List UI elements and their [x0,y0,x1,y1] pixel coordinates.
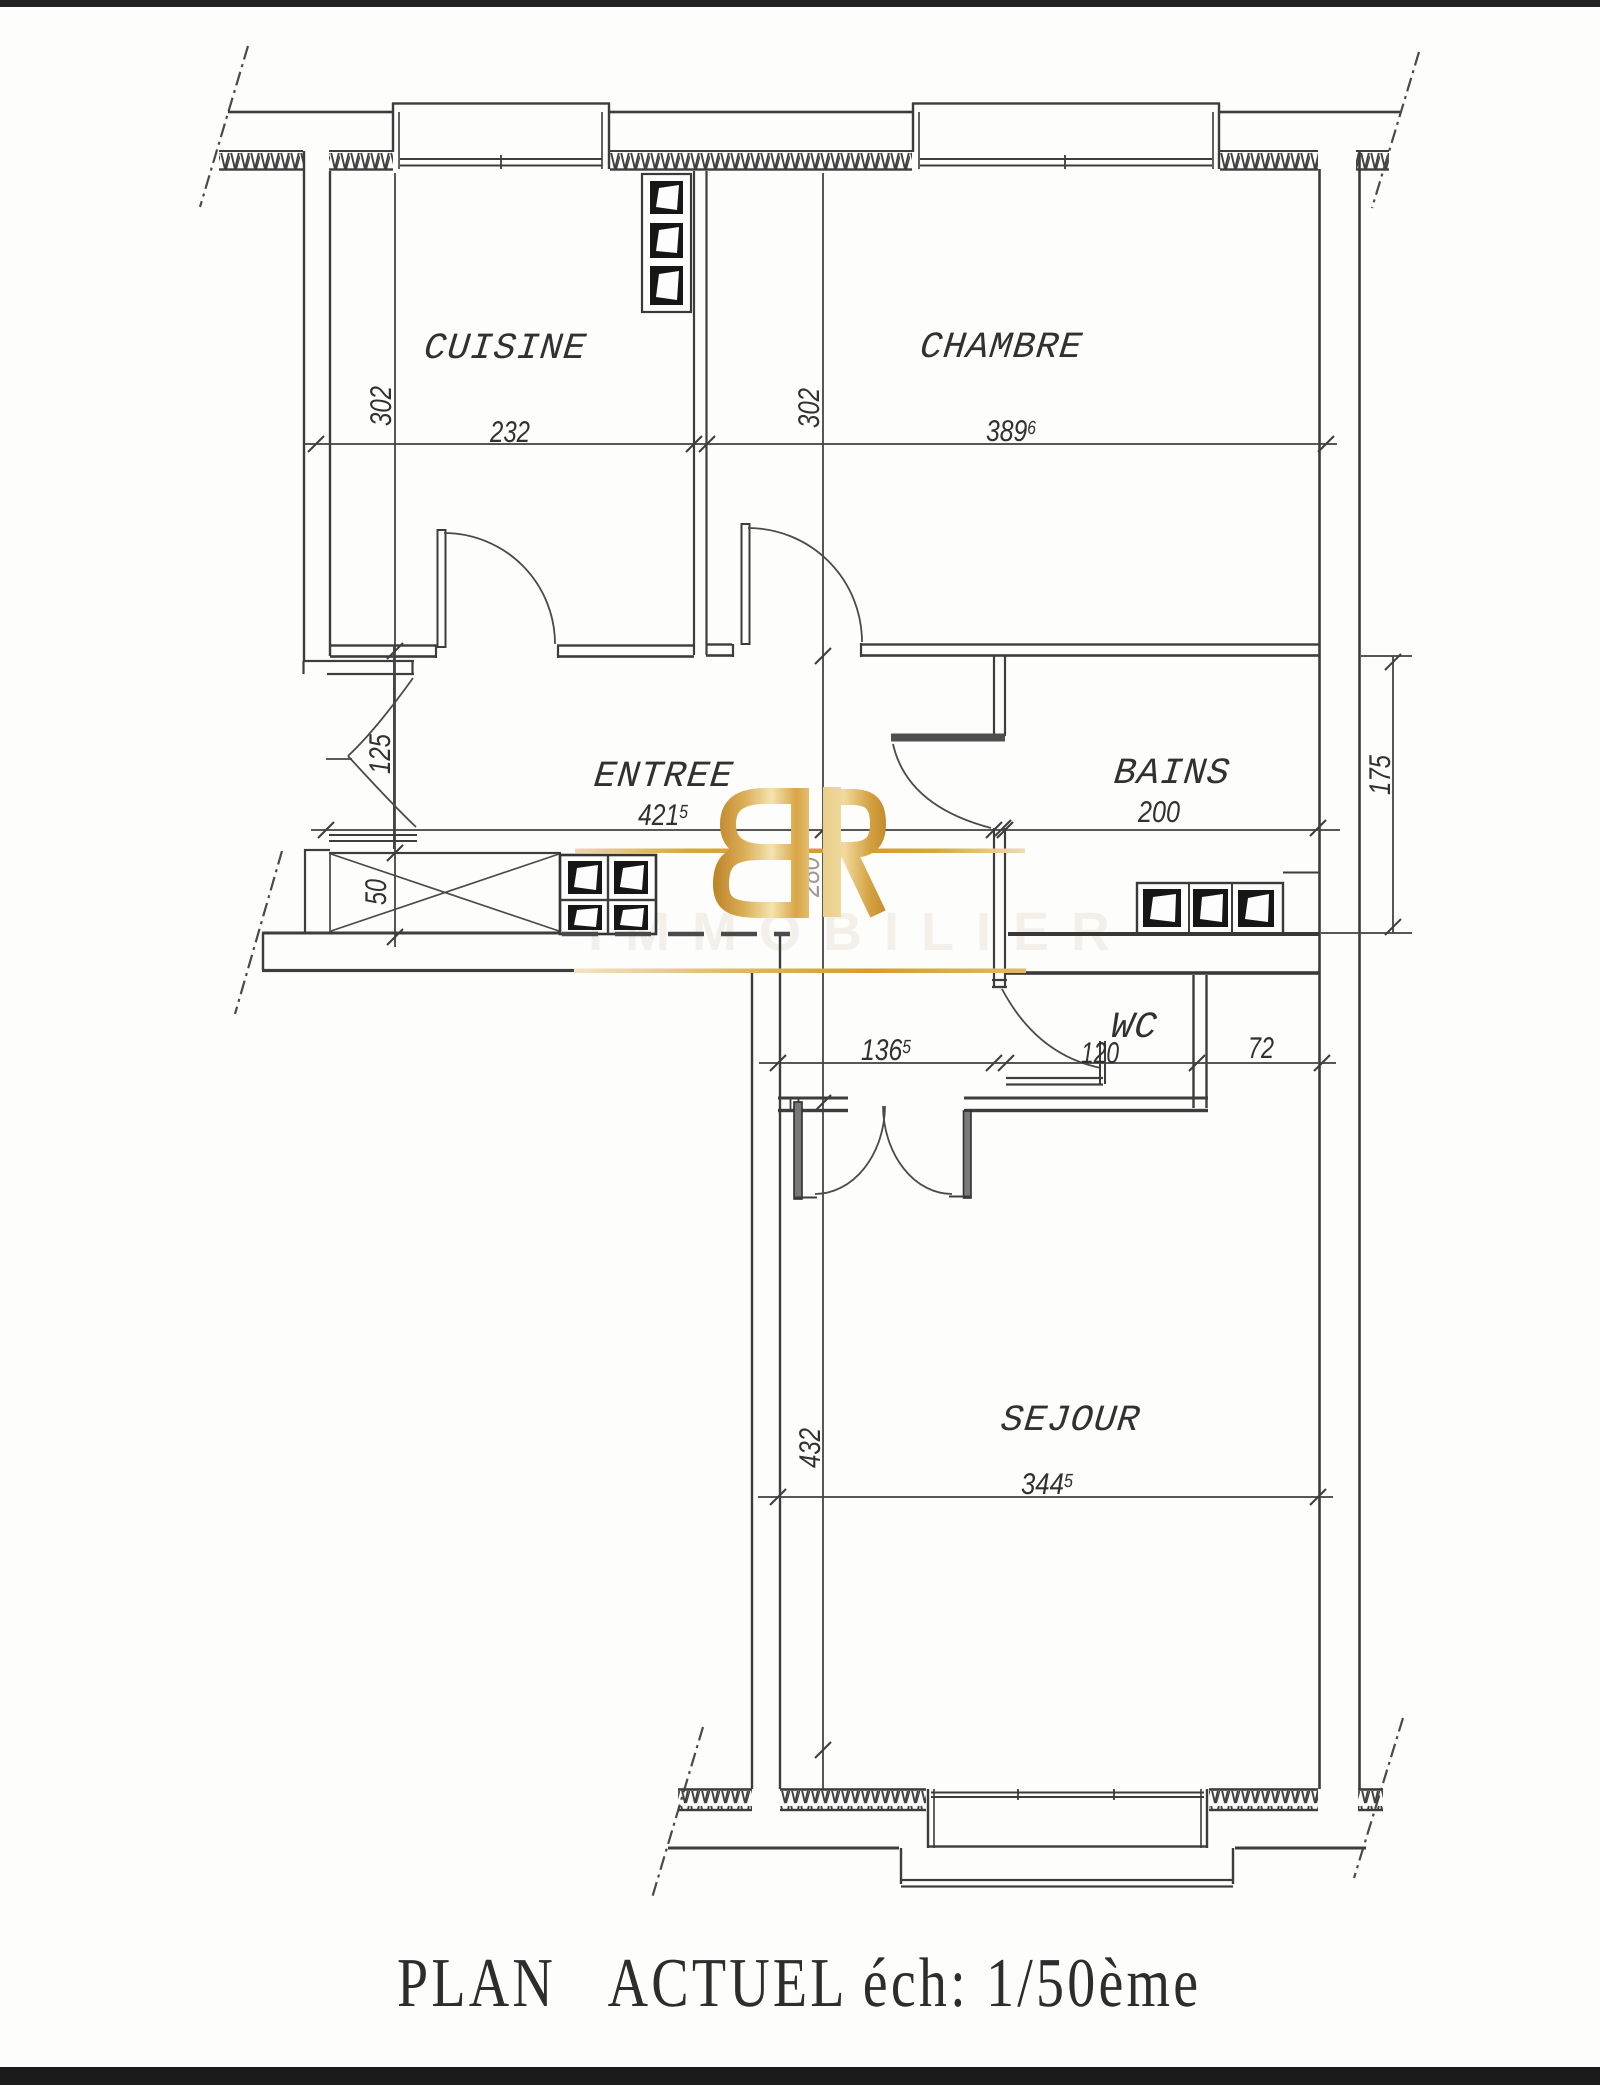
svg-text:302: 302 [365,386,398,426]
svg-text:SEJOUR: SEJOUR [999,1400,1143,1442]
svg-text:PLAN ACTUEL éch: 1/50ème: PLAN ACTUEL éch: 1/50ème [397,1945,1201,2022]
svg-text:120: 120 [1081,1037,1119,1070]
svg-text:72: 72 [1248,1032,1274,1065]
svg-text:CHAMBRE: CHAMBRE [918,327,1085,369]
svg-text:BAINS: BAINS [1112,753,1232,795]
svg-text:200: 200 [1137,796,1180,829]
svg-text:ENTREE: ENTREE [592,756,736,798]
svg-text:432: 432 [794,1428,827,1468]
svg-text:50: 50 [360,879,393,905]
svg-text:232: 232 [489,416,530,449]
svg-text:302: 302 [793,388,826,428]
svg-text:125: 125 [364,734,397,774]
svg-text:CUISINE: CUISINE [422,328,589,370]
svg-text:175: 175 [1364,755,1397,795]
